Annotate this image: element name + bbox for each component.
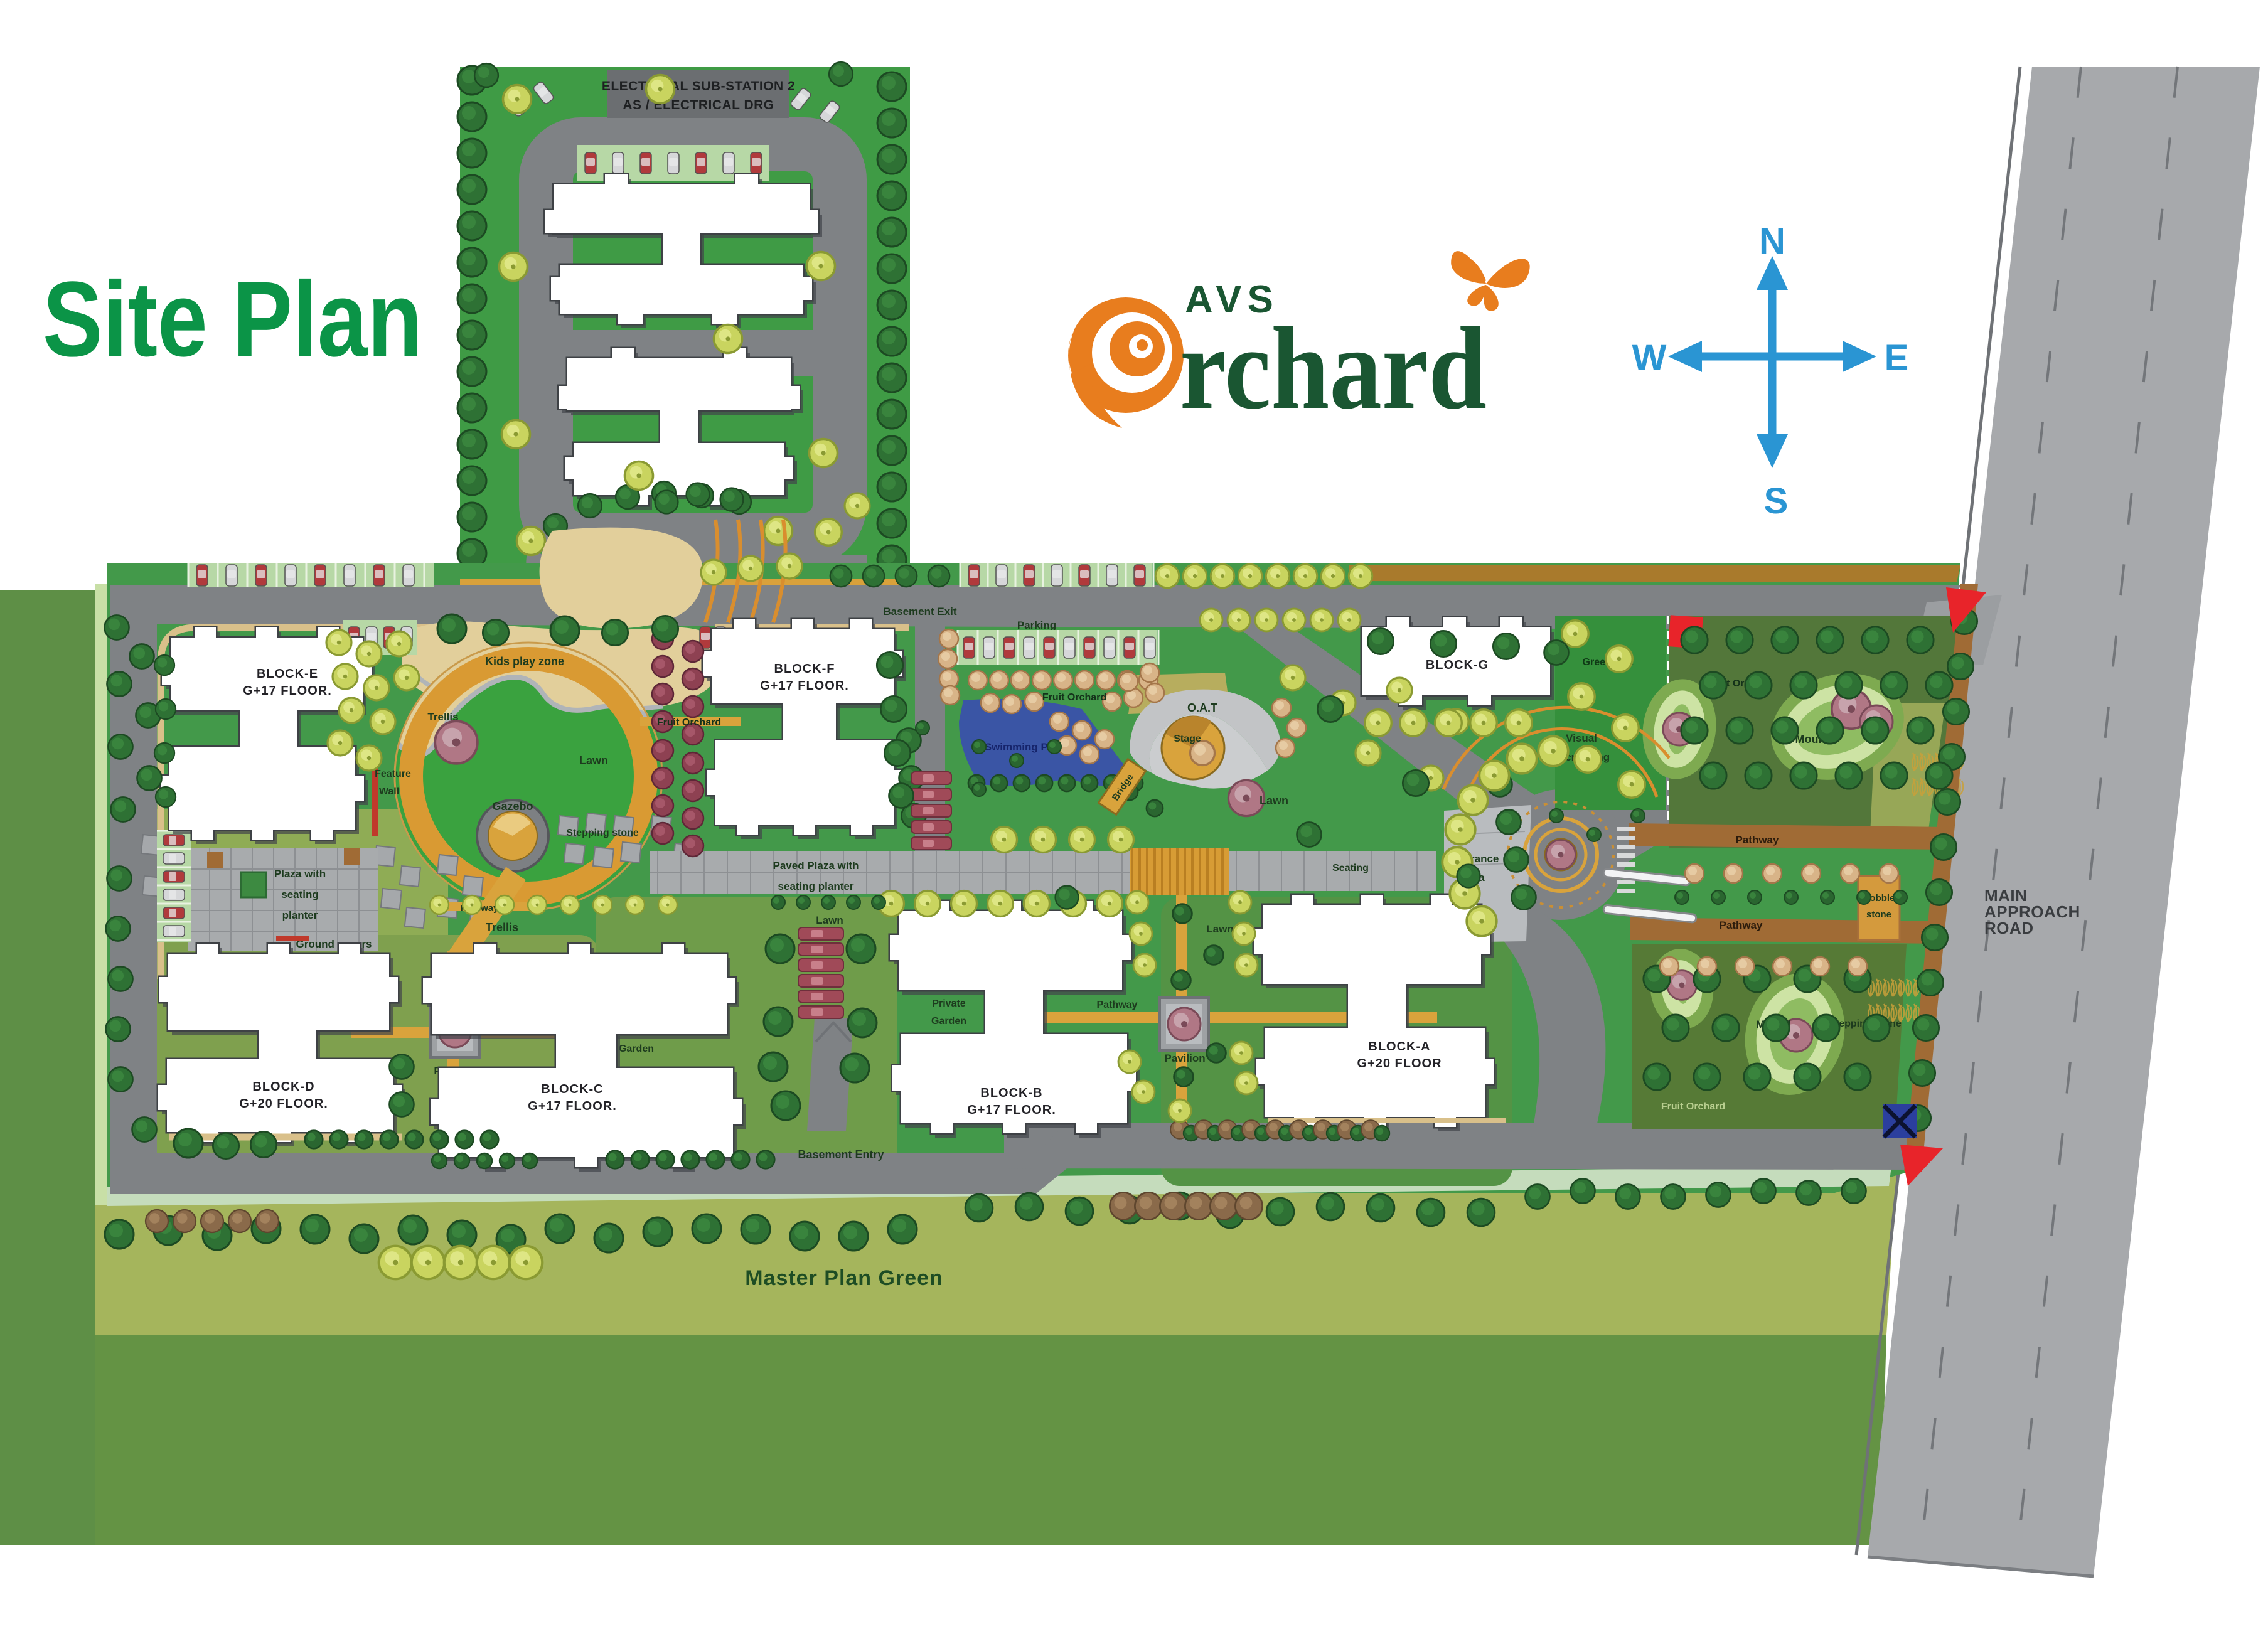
svg-text:ELECTRICAL SUB-STATION 2: ELECTRICAL SUB-STATION 2 [602, 79, 795, 93]
svg-text:N: N [1759, 221, 1785, 262]
svg-text:BLOCK-E: BLOCK-E [257, 667, 318, 681]
svg-text:Pathway: Pathway [1736, 834, 1780, 846]
svg-text:G+17 FLOOR.: G+17 FLOOR. [528, 1099, 617, 1113]
svg-text:Trellis: Trellis [486, 921, 518, 934]
svg-text:Basement Entry: Basement Entry [798, 1148, 884, 1161]
svg-text:Site Plan: Site Plan [43, 260, 422, 379]
svg-text:G+20 FLOOR: G+20 FLOOR [1357, 1057, 1442, 1071]
svg-text:BLOCK-F: BLOCK-F [774, 662, 835, 676]
svg-text:seating planter: seating planter [778, 880, 854, 892]
svg-text:O.A.T: O.A.T [1187, 702, 1217, 714]
svg-text:planter: planter [282, 909, 318, 921]
svg-text:stone: stone [1866, 909, 1891, 920]
svg-text:Garden: Garden [619, 1044, 654, 1054]
svg-text:Fruit Orchard: Fruit Orchard [1661, 1101, 1725, 1112]
svg-text:AS / ELECTRICAL DRG: AS / ELECTRICAL DRG [623, 98, 774, 112]
svg-text:Feature: Feature [375, 769, 411, 779]
svg-text:S: S [1764, 481, 1789, 521]
svg-text:Kids play zone: Kids play zone [485, 655, 564, 668]
svg-text:BLOCK-D: BLOCK-D [252, 1080, 314, 1094]
svg-text:ROAD: ROAD [1984, 919, 2034, 937]
svg-text:Wall: Wall [379, 786, 399, 797]
svg-text:rchard: rchard [1180, 302, 1487, 434]
svg-text:Gazebo: Gazebo [492, 800, 533, 813]
svg-text:G+17 FLOOR.: G+17 FLOOR. [243, 684, 332, 698]
svg-text:Garden: Garden [931, 1016, 966, 1027]
svg-text:Lawn: Lawn [1206, 923, 1233, 935]
svg-text:Basement Exit: Basement Exit [883, 606, 956, 617]
svg-text:Pathway: Pathway [1720, 919, 1763, 931]
svg-text:G+20 FLOOR.: G+20 FLOOR. [239, 1097, 328, 1111]
svg-text:Stage: Stage [1174, 734, 1201, 744]
svg-text:BLOCK-G: BLOCK-G [1426, 658, 1489, 672]
svg-text:Pavilion: Pavilion [1164, 1052, 1205, 1064]
svg-text:Fruit Orchard: Fruit Orchard [657, 717, 721, 728]
svg-text:Visual: Visual [1566, 732, 1597, 744]
svg-text:Paved Plaza with: Paved Plaza with [773, 860, 859, 872]
svg-text:Stepping stone: Stepping stone [566, 828, 639, 838]
svg-text:Parking: Parking [1017, 619, 1056, 631]
svg-text:Pathway: Pathway [1097, 1000, 1138, 1010]
svg-text:Plaza with: Plaza with [274, 868, 326, 880]
svg-text:Private: Private [932, 998, 965, 1009]
svg-text:Lawn: Lawn [579, 754, 608, 767]
svg-text:Lawn: Lawn [1260, 794, 1288, 807]
svg-text:BLOCK-A: BLOCK-A [1368, 1040, 1430, 1054]
svg-text:Seating: Seating [1332, 863, 1369, 873]
svg-text:Lawn: Lawn [816, 914, 843, 926]
svg-text:G+17 FLOOR.: G+17 FLOOR. [760, 679, 849, 693]
svg-text:seating: seating [281, 889, 319, 900]
svg-text:E: E [1885, 338, 1909, 378]
svg-text:W: W [1632, 338, 1667, 378]
svg-text:Fruit Orchard: Fruit Orchard [1042, 692, 1106, 703]
svg-text:BLOCK-C: BLOCK-C [541, 1082, 603, 1096]
svg-text:BLOCK-B: BLOCK-B [980, 1086, 1042, 1100]
svg-text:G+17 FLOOR.: G+17 FLOOR. [967, 1103, 1056, 1117]
svg-text:Master Plan Green: Master Plan Green [745, 1266, 943, 1290]
